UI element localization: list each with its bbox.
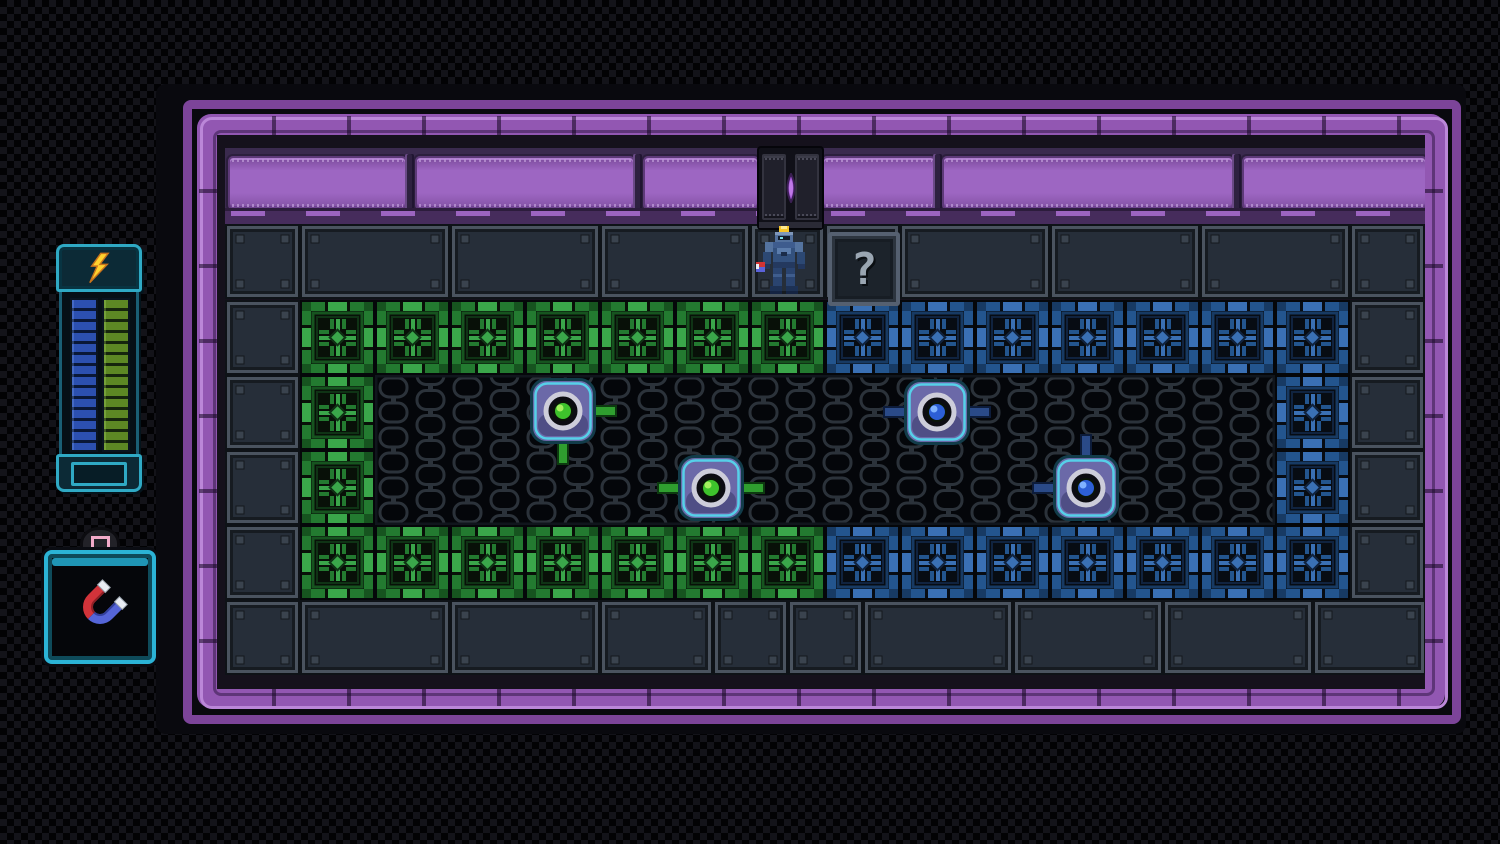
- grey-tile: [600, 600, 713, 675]
- room-interior[interactable]: ?: [217, 135, 1425, 689]
- mystery-block[interactable]: ?: [828, 232, 900, 306]
- grey-tile: [300, 600, 450, 675]
- blue-tile: [1275, 525, 1350, 600]
- player-sprite: [753, 226, 815, 300]
- banner-panel: [942, 156, 1234, 210]
- green-tile: [300, 300, 375, 375]
- grey-tile: [225, 224, 300, 299]
- tile-row-top-grey: [225, 224, 1425, 299]
- grey-tile: [788, 600, 863, 675]
- mystery-glyph: ?: [851, 244, 878, 295]
- grey-tile: [1350, 525, 1425, 600]
- energy-meter-body: [59, 292, 139, 454]
- banner-ledge: [225, 208, 1425, 224]
- mesh-background: [375, 375, 1275, 525]
- tile-row-lower-colored: [225, 525, 1425, 600]
- grey-tile: [300, 224, 450, 299]
- grey-tile: [600, 224, 750, 299]
- blue-tile: [1050, 300, 1125, 375]
- blue-tile: [1200, 525, 1275, 600]
- wall-column-right-blue: [1275, 375, 1350, 525]
- blue-orb-1[interactable]: [904, 379, 970, 445]
- grey-tile: [225, 525, 300, 600]
- blue-tile: [900, 300, 975, 375]
- banner-panel: [1242, 156, 1425, 210]
- banner-divider-post: [633, 154, 642, 212]
- blue-tile: [1275, 300, 1350, 375]
- grey-tile: [225, 600, 300, 675]
- green-orb-1[interactable]: [530, 378, 596, 444]
- grey-tile: [225, 300, 300, 375]
- grey-tile: [1313, 600, 1425, 675]
- green-tile: [750, 300, 825, 375]
- green-tile: [600, 300, 675, 375]
- wall-column-left-grey: [225, 375, 300, 525]
- grey-tile: [1050, 224, 1200, 299]
- blue-tile: [1125, 300, 1200, 375]
- energy-column-green: [102, 298, 130, 452]
- energy-meter: [56, 244, 142, 492]
- blue-tile: [825, 300, 900, 375]
- tile-row-bottom-grey: [225, 600, 1425, 675]
- green-tile: [450, 300, 525, 375]
- tile-row-upper-colored: [225, 300, 1425, 375]
- green-tile: [675, 300, 750, 375]
- item-box-top-strip: [52, 558, 148, 566]
- grey-tile: [1350, 300, 1425, 375]
- blue-orb-2[interactable]: [1053, 455, 1119, 521]
- wall-column-right-grey: [1350, 375, 1425, 525]
- grey-tile: [863, 600, 1013, 675]
- green-tile: [300, 525, 375, 600]
- energy-meter-cap: [56, 244, 142, 292]
- item-slot-magnet: [44, 530, 156, 666]
- blue-tile: [1050, 525, 1125, 600]
- game-screen: { "game": { "player": {"sprite": "armore…: [0, 0, 1500, 844]
- green-tile: [525, 525, 600, 600]
- green-tile: [750, 525, 825, 600]
- blue-tile: [1200, 300, 1275, 375]
- green-tile: [375, 300, 450, 375]
- banner-panel: [643, 156, 759, 210]
- grey-tile: [1200, 224, 1350, 299]
- grey-tile: [450, 600, 600, 675]
- grey-tile: [1163, 600, 1313, 675]
- item-box: [44, 550, 156, 664]
- blue-tile: [975, 300, 1050, 375]
- banner-divider-post: [405, 154, 414, 212]
- middle-section: [225, 375, 1425, 525]
- blue-tile: [975, 525, 1050, 600]
- hud: [0, 0, 160, 844]
- door-lens-icon: [782, 173, 800, 203]
- energy-column-blue: [70, 298, 98, 452]
- grey-tile: [1350, 224, 1425, 299]
- green-tile: [375, 525, 450, 600]
- upper-wall-banner: [225, 148, 1425, 224]
- grey-tile: [900, 224, 1050, 299]
- banner-divider-post: [1232, 154, 1241, 212]
- green-tile: [450, 525, 525, 600]
- blue-tile: [825, 525, 900, 600]
- wall-column-left-green: [300, 375, 375, 525]
- grey-tile: [713, 600, 788, 675]
- player-robot[interactable]: [753, 226, 815, 300]
- green-orb-2[interactable]: [678, 455, 744, 521]
- blue-tile: [1125, 525, 1200, 600]
- grey-tile: [450, 224, 600, 299]
- green-tile: [675, 525, 750, 600]
- lightning-bolt-icon: [88, 252, 110, 284]
- door[interactable]: [757, 146, 824, 230]
- green-tile: [600, 525, 675, 600]
- grey-tile: [1013, 600, 1163, 675]
- banner-panel: [822, 156, 936, 210]
- blue-tile: [900, 525, 975, 600]
- green-tile: [525, 300, 600, 375]
- banner-panel: [228, 156, 407, 210]
- magnet-icon: [71, 578, 129, 636]
- banner-panel: [415, 156, 635, 210]
- banner-divider-post: [933, 154, 942, 212]
- energy-meter-base: [56, 454, 142, 492]
